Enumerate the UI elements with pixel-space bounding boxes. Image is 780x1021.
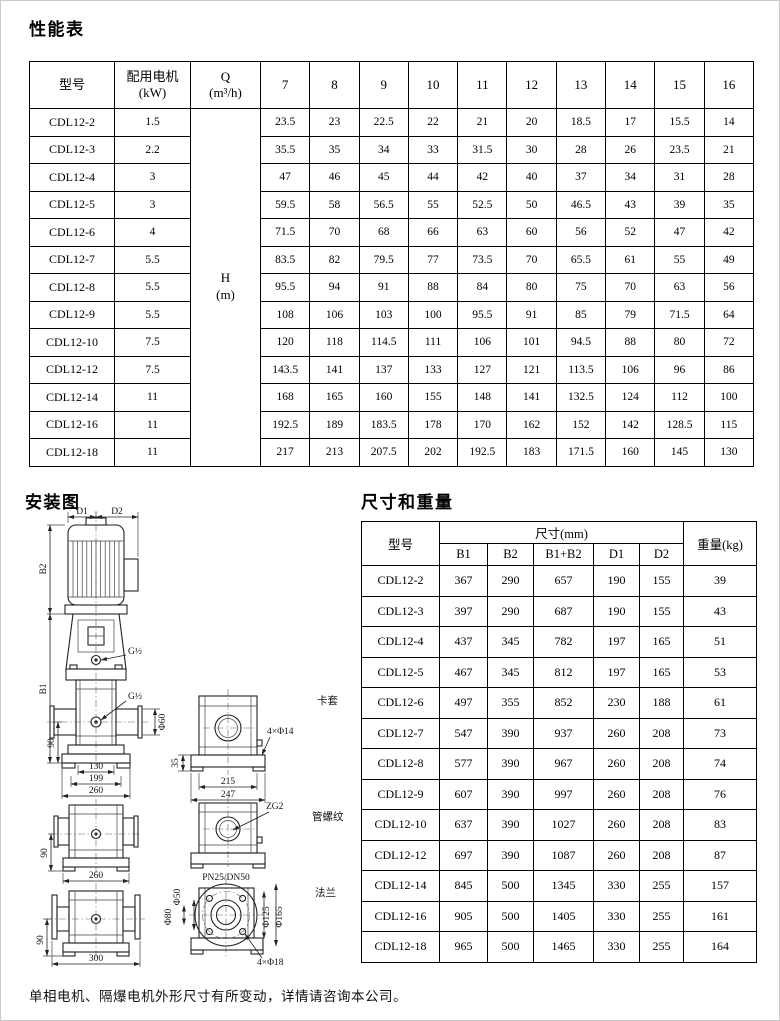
size-value-cell: 437: [440, 627, 488, 658]
head-value-cell: 22: [408, 109, 457, 137]
performance-row: CDL12-5359.55856.55552.55046.5433935: [30, 191, 754, 219]
size-value-cell: 330: [594, 901, 640, 932]
model-cell: CDL12-5: [362, 657, 440, 688]
head-value-cell: 111: [408, 329, 457, 357]
head-value-cell: 192.5: [261, 411, 310, 439]
size-value-cell: 697: [440, 840, 488, 871]
head-value-cell: 94: [310, 274, 359, 302]
flow-column-header: Q (m³/h): [191, 62, 261, 109]
head-value-cell: 108: [261, 301, 310, 329]
weight-cell: 51: [684, 627, 757, 658]
dimensions-row: CDL12-236729065719015539: [362, 566, 757, 597]
model-cell: CDL12-12: [30, 356, 115, 384]
flow-header-cell: 9: [359, 62, 408, 109]
flow-header-cell: 12: [507, 62, 556, 109]
head-value-cell: 73.5: [458, 246, 507, 274]
model-column-header: 型号: [30, 62, 115, 109]
head-value-cell: 22.5: [359, 109, 408, 137]
head-value-cell: 103: [359, 301, 408, 329]
head-value-cell: 34: [606, 164, 655, 192]
dim-199-label: 199: [89, 774, 104, 784]
size-value-cell: 657: [534, 566, 594, 597]
head-value-cell: 56.5: [359, 191, 408, 219]
dim-b1-label: B1: [39, 683, 49, 694]
dim-d2-label: D2: [111, 507, 123, 517]
head-value-cell: 17: [606, 109, 655, 137]
head-value-cell: 63: [458, 219, 507, 247]
motor-kw-cell: 1.5: [115, 109, 191, 137]
size-value-cell: 330: [594, 871, 640, 902]
size-value-cell: 390: [488, 840, 534, 871]
head-value-cell: 26: [606, 136, 655, 164]
size-value-cell: 967: [534, 749, 594, 780]
head-value-cell: 127: [458, 356, 507, 384]
size-header-cell: D2: [640, 544, 684, 566]
pump-front-view: D1 D2 B2 B1 G½ G½ Φ60 90 130 199 260: [39, 507, 168, 799]
dimensions-row: CDL12-189655001465330255164: [362, 932, 757, 963]
weight-cell: 43: [684, 596, 757, 627]
size-value-cell: 687: [534, 596, 594, 627]
head-value-cell: 47: [261, 164, 310, 192]
head-value-cell: 42: [458, 164, 507, 192]
size-value-cell: 782: [534, 627, 594, 658]
head-value-cell: 14: [704, 109, 753, 137]
head-value-cell: 31: [655, 164, 704, 192]
size-header-cell: B1+B2: [534, 544, 594, 566]
size-value-cell: 165: [640, 657, 684, 688]
size-value-cell: 290: [488, 566, 534, 597]
motor-header-label: 配用电机: [115, 69, 190, 85]
performance-row: CDL12-21.5H(m)23.52322.522212018.51715.5…: [30, 109, 754, 137]
motor-kw-cell: 7.5: [115, 356, 191, 384]
performance-header-row: 型号 配用电机 (kW) Q (m³/h) 78910111213141516: [30, 62, 754, 109]
model-cell: CDL12-5: [30, 191, 115, 219]
size-value-cell: 208: [640, 749, 684, 780]
model-cell: CDL12-7: [362, 718, 440, 749]
size-value-cell: 500: [488, 901, 534, 932]
performance-row: CDL12-75.583.58279.57773.57065.5615549: [30, 246, 754, 274]
thread-zg2-label: ZG2: [266, 802, 284, 812]
installation-diagram: D1 D2 B2 B1 G½ G½ Φ60 90 130 199 260: [21, 503, 356, 978]
model-cell: CDL12-10: [362, 810, 440, 841]
head-value-cell: 83.5: [261, 246, 310, 274]
head-value-cell: 44: [408, 164, 457, 192]
head-value-cell: 77: [408, 246, 457, 274]
port-g-half-mid-label: G½: [128, 691, 142, 702]
size-value-cell: 845: [440, 871, 488, 902]
model-cell: CDL12-16: [362, 901, 440, 932]
head-value-cell: 148: [458, 384, 507, 412]
flow-header-cell: 10: [408, 62, 457, 109]
size-value-cell: 155: [640, 596, 684, 627]
head-value-cell: 82: [310, 246, 359, 274]
head-value-cell: 56: [556, 219, 605, 247]
head-value-cell: 23.5: [655, 136, 704, 164]
head-value-cell: 189: [310, 411, 359, 439]
flow-header-label: Q: [191, 69, 260, 85]
performance-row: CDL12-1611192.5189183.517817016215214212…: [30, 411, 754, 439]
performance-row: CDL12-127.5143.5141137133127121113.51069…: [30, 356, 754, 384]
size-value-cell: 390: [488, 779, 534, 810]
flow-header-cell: 14: [606, 62, 655, 109]
size-value-cell: 637: [440, 810, 488, 841]
flange-pn-dn-label: PN25/DN50: [202, 873, 250, 883]
model-cell: CDL12-4: [362, 627, 440, 658]
motor-kw-cell: 11: [115, 411, 191, 439]
flow-header-cell: 11: [458, 62, 507, 109]
weight-cell: 76: [684, 779, 757, 810]
head-value-cell: 71.5: [261, 219, 310, 247]
size-value-cell: 812: [534, 657, 594, 688]
size-value-cell: 937: [534, 718, 594, 749]
head-value-cell: 217: [261, 439, 310, 467]
head-value-cell: 21: [704, 136, 753, 164]
motor-kw-cell: 5.5: [115, 246, 191, 274]
head-value-cell: 101: [507, 329, 556, 357]
head-value-cell: 88: [606, 329, 655, 357]
dimensions-row: CDL12-960739099726020876: [362, 779, 757, 810]
head-value-cell: 52.5: [458, 191, 507, 219]
head-value-cell: 60: [507, 219, 556, 247]
size-header-cell: D1: [594, 544, 640, 566]
head-value-cell: 132.5: [556, 384, 605, 412]
size-value-cell: 260: [594, 810, 640, 841]
head-value-cell: 86: [704, 356, 753, 384]
size-value-cell: 1087: [534, 840, 594, 871]
head-value-cell: 50: [507, 191, 556, 219]
flow-header-cell: 13: [556, 62, 605, 109]
size-value-cell: 1027: [534, 810, 594, 841]
size-value-cell: 260: [594, 718, 640, 749]
size-value-cell: 547: [440, 718, 488, 749]
h-label: H: [191, 270, 260, 287]
dim-90-main-label: 90: [47, 738, 57, 748]
motor-kw-cell: 5.5: [115, 301, 191, 329]
head-value-cell: 95.5: [261, 274, 310, 302]
head-value-cell: 64: [704, 301, 753, 329]
model-cell: CDL12-2: [362, 566, 440, 597]
head-value-cell: 63: [655, 274, 704, 302]
clamp-front-view: 90 260: [40, 799, 141, 884]
head-value-cell: 113.5: [556, 356, 605, 384]
head-value-cell: 160: [359, 384, 408, 412]
flow-header-unit: (m³/h): [191, 85, 260, 101]
head-value-cell: 40: [507, 164, 556, 192]
flow-header-cell: 7: [261, 62, 310, 109]
head-value-cell: 75: [556, 274, 605, 302]
weight-cell: 164: [684, 932, 757, 963]
head-value-cell: 100: [704, 384, 753, 412]
head-value-cell: 58: [310, 191, 359, 219]
performance-table-body: CDL12-21.5H(m)23.52322.522212018.51715.5…: [30, 109, 754, 467]
size-value-cell: 260: [594, 749, 640, 780]
head-value-cell: 20: [507, 109, 556, 137]
head-value-cell: 106: [458, 329, 507, 357]
head-value-cell: 183.5: [359, 411, 408, 439]
head-value-cell: 61: [606, 246, 655, 274]
dim-b2-label: B2: [39, 563, 49, 574]
motor-kw-cell: 2.2: [115, 136, 191, 164]
dim-phi60-label: Φ60: [158, 714, 168, 731]
head-value-cell: 178: [408, 411, 457, 439]
head-value-cell: 160: [606, 439, 655, 467]
head-value-cell: 31.5: [458, 136, 507, 164]
head-value-cell: 141: [507, 384, 556, 412]
head-value-cell: 56: [704, 274, 753, 302]
head-value-cell: 79: [606, 301, 655, 329]
dim-90-mid-label: 90: [40, 848, 50, 858]
performance-row: CDL12-107.5120118114.511110610194.588807…: [30, 329, 754, 357]
flange-side-view: PN25/DN50 Φ50 Φ80 Φ125 Φ165 4×Φ18 法兰: [164, 873, 336, 968]
head-value-cell: 88: [408, 274, 457, 302]
h-unit: (m): [191, 287, 260, 304]
head-value-cell: 85: [556, 301, 605, 329]
model-cell: CDL12-6: [362, 688, 440, 719]
head-value-cell: 34: [359, 136, 408, 164]
size-value-cell: 390: [488, 749, 534, 780]
size-value-cell: 190: [594, 566, 640, 597]
model-cell: CDL12-2: [30, 109, 115, 137]
performance-row: CDL12-32.235.535343331.530282623.521: [30, 136, 754, 164]
head-value-cell: 165: [310, 384, 359, 412]
size-value-cell: 905: [440, 901, 488, 932]
size-value-cell: 155: [640, 566, 684, 597]
flow-header-cell: 8: [310, 62, 359, 109]
size-value-cell: 345: [488, 657, 534, 688]
footer-note: 单相电机、隔爆电机外形尺寸有所变动，详情请咨询本公司。: [29, 985, 407, 1005]
head-value-cell: 18.5: [556, 109, 605, 137]
head-value-cell: 121: [507, 356, 556, 384]
flow-header-cell: 15: [655, 62, 704, 109]
dim-phi165-label: Φ165: [275, 906, 285, 927]
size-value-cell: 367: [440, 566, 488, 597]
dimensions-row: CDL12-443734578219716551: [362, 627, 757, 658]
size-value-cell: 1405: [534, 901, 594, 932]
dimensions-table-body: CDL12-236729065719015539CDL12-3397290687…: [362, 566, 757, 963]
clamp-side-view: 35 215 247 4×Φ14 卡套: [171, 689, 338, 803]
model-cell: CDL12-8: [30, 274, 115, 302]
size-value-cell: 260: [594, 840, 640, 871]
head-value-cell: 152: [556, 411, 605, 439]
head-value-cell: 55: [408, 191, 457, 219]
dim-130-label: 130: [89, 762, 104, 772]
motor-kw-cell: 4: [115, 219, 191, 247]
head-value-cell: 118: [310, 329, 359, 357]
head-value-cell: 170: [458, 411, 507, 439]
head-value-cell: 114.5: [359, 329, 408, 357]
model-cell: CDL12-16: [30, 411, 115, 439]
bolt-holes-18-label: 4×Φ18: [257, 958, 284, 968]
weight-cell: 157: [684, 871, 757, 902]
size-value-cell: 397: [440, 596, 488, 627]
size-value-cell: 208: [640, 779, 684, 810]
head-value-cell: 33: [408, 136, 457, 164]
weight-cell: 53: [684, 657, 757, 688]
size-value-cell: 208: [640, 810, 684, 841]
head-value-cell: 183: [507, 439, 556, 467]
head-unit-cell: H(m): [191, 109, 261, 467]
dimensions-row: CDL12-169055001405330255161: [362, 901, 757, 932]
head-value-cell: 124: [606, 384, 655, 412]
size-value-cell: 500: [488, 932, 534, 963]
spec-sheet-page: 性能表 型号 配用电机 (kW) Q (m³/h) 78910111213141…: [0, 0, 780, 1021]
motor-kw-cell: 3: [115, 191, 191, 219]
head-value-cell: 145: [655, 439, 704, 467]
head-value-cell: 55: [655, 246, 704, 274]
model-cell: CDL12-3: [30, 136, 115, 164]
pipe-thread-label: 管螺纹: [312, 810, 344, 823]
head-value-cell: 47: [655, 219, 704, 247]
weight-cell: 74: [684, 749, 757, 780]
model-cell: CDL12-18: [30, 439, 115, 467]
dimensions-section-title: 尺寸和重量: [361, 488, 454, 513]
size-value-cell: 390: [488, 718, 534, 749]
weight-cell: 161: [684, 901, 757, 932]
head-value-cell: 68: [359, 219, 408, 247]
size-value-cell: 290: [488, 596, 534, 627]
dim-phi80-label: Φ80: [164, 909, 174, 926]
motor-header-unit: (kW): [115, 85, 190, 101]
head-value-cell: 91: [359, 274, 408, 302]
dimensions-row: CDL12-12697390108726020887: [362, 840, 757, 871]
dim-phi50-label: Φ50: [173, 889, 183, 906]
head-value-cell: 45: [359, 164, 408, 192]
head-value-cell: 59.5: [261, 191, 310, 219]
head-value-cell: 39: [655, 191, 704, 219]
head-value-cell: 52: [606, 219, 655, 247]
head-value-cell: 115: [704, 411, 753, 439]
dimensions-row: CDL12-10637390102726020883: [362, 810, 757, 841]
weight-column-header: 重量(kg): [684, 522, 757, 566]
head-value-cell: 46: [310, 164, 359, 192]
model-cell: CDL12-8: [362, 749, 440, 780]
model-column-header: 型号: [362, 522, 440, 566]
motor-kw-cell: 5.5: [115, 274, 191, 302]
motor-kw-cell: 7.5: [115, 329, 191, 357]
size-value-cell: 607: [440, 779, 488, 810]
head-value-cell: 106: [310, 301, 359, 329]
flange-connection-label: 法兰: [315, 886, 336, 899]
size-value-cell: 497: [440, 688, 488, 719]
model-cell: CDL12-10: [30, 329, 115, 357]
port-g-half-top-label: G½: [128, 646, 142, 657]
head-value-cell: 133: [408, 356, 457, 384]
model-cell: CDL12-14: [30, 384, 115, 412]
head-value-cell: 213: [310, 439, 359, 467]
size-value-cell: 197: [594, 657, 640, 688]
size-value-cell: 255: [640, 932, 684, 963]
model-cell: CDL12-4: [30, 164, 115, 192]
model-cell: CDL12-18: [362, 932, 440, 963]
performance-table: 型号 配用电机 (kW) Q (m³/h) 78910111213141516 …: [29, 61, 754, 467]
model-cell: CDL12-14: [362, 871, 440, 902]
head-value-cell: 100: [408, 301, 457, 329]
weight-cell: 87: [684, 840, 757, 871]
dim-35-label: 35: [171, 758, 181, 768]
head-value-cell: 28: [556, 136, 605, 164]
head-value-cell: 35.5: [261, 136, 310, 164]
motor-kw-cell: 3: [115, 164, 191, 192]
size-value-cell: 1345: [534, 871, 594, 902]
size-header-cell: B2: [488, 544, 534, 566]
performance-row: CDL12-6471.5706866636056524742: [30, 219, 754, 247]
head-value-cell: 80: [655, 329, 704, 357]
head-value-cell: 72: [704, 329, 753, 357]
performance-row: CDL12-85.595.5949188848075706356: [30, 274, 754, 302]
size-value-cell: 965: [440, 932, 488, 963]
size-value-cell: 188: [640, 688, 684, 719]
dim-d1-label: D1: [76, 507, 88, 517]
head-value-cell: 23: [310, 109, 359, 137]
head-value-cell: 106: [606, 356, 655, 384]
dimensions-row: CDL12-649735585223018861: [362, 688, 757, 719]
head-value-cell: 43: [606, 191, 655, 219]
motor-kw-cell: 11: [115, 384, 191, 412]
head-value-cell: 70: [606, 274, 655, 302]
head-value-cell: 192.5: [458, 439, 507, 467]
dimensions-header-row1: 型号 尺寸(mm) 重量(kg): [362, 522, 757, 544]
bolt-holes-14-label: 4×Φ14: [267, 727, 294, 737]
head-value-cell: 66: [408, 219, 457, 247]
size-value-cell: 255: [640, 871, 684, 902]
head-value-cell: 23.5: [261, 109, 310, 137]
head-value-cell: 91: [507, 301, 556, 329]
weight-cell: 39: [684, 566, 757, 597]
head-value-cell: 96: [655, 356, 704, 384]
size-value-cell: 255: [640, 901, 684, 932]
dimensions-row: CDL12-754739093726020873: [362, 718, 757, 749]
head-value-cell: 79.5: [359, 246, 408, 274]
dim-phi125-label: Φ125: [262, 906, 272, 927]
head-value-cell: 130: [704, 439, 753, 467]
head-value-cell: 202: [408, 439, 457, 467]
dimensions-row: CDL12-339729068719015543: [362, 596, 757, 627]
head-value-cell: 171.5: [556, 439, 605, 467]
head-value-cell: 207.5: [359, 439, 408, 467]
dimensions-table: 型号 尺寸(mm) 重量(kg) B1B2B1+B2D1D2 CDL12-236…: [361, 521, 757, 963]
head-value-cell: 15.5: [655, 109, 704, 137]
thread-side-view: ZG2 管螺纹: [191, 797, 344, 868]
head-value-cell: 65.5: [556, 246, 605, 274]
size-header-cell: B1: [440, 544, 488, 566]
dim-90-bottom-label: 90: [36, 935, 46, 945]
head-value-cell: 37: [556, 164, 605, 192]
weight-cell: 73: [684, 718, 757, 749]
size-value-cell: 852: [534, 688, 594, 719]
head-value-cell: 21: [458, 109, 507, 137]
model-cell: CDL12-3: [362, 596, 440, 627]
performance-row: CDL12-1811217213207.5202192.5183171.5160…: [30, 439, 754, 467]
head-value-cell: 137: [359, 356, 408, 384]
head-value-cell: 128.5: [655, 411, 704, 439]
dim-260-mid-label: 260: [89, 871, 104, 881]
performance-section-title: 性能表: [29, 15, 85, 40]
dimensions-row: CDL12-148455001345330255157: [362, 871, 757, 902]
model-cell: CDL12-6: [30, 219, 115, 247]
head-value-cell: 120: [261, 329, 310, 357]
size-value-cell: 467: [440, 657, 488, 688]
head-value-cell: 35: [310, 136, 359, 164]
size-value-cell: 1465: [534, 932, 594, 963]
model-cell: CDL12-9: [30, 301, 115, 329]
size-value-cell: 208: [640, 840, 684, 871]
performance-row: CDL12-1411168165160155148141132.51241121…: [30, 384, 754, 412]
head-value-cell: 70: [507, 246, 556, 274]
head-value-cell: 143.5: [261, 356, 310, 384]
head-value-cell: 71.5: [655, 301, 704, 329]
size-value-cell: 500: [488, 871, 534, 902]
size-group-header: 尺寸(mm): [440, 522, 684, 544]
